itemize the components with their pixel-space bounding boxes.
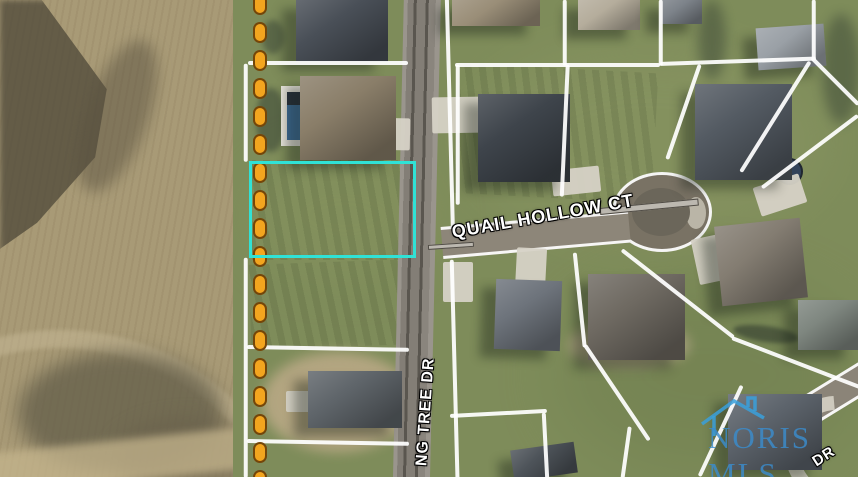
lot-boundary-dash — [253, 414, 267, 435]
driveway — [443, 262, 473, 302]
lot-boundary-dash — [253, 442, 267, 463]
tree — [698, 0, 726, 80]
lot-boundary-dash — [253, 302, 267, 323]
property-line — [456, 65, 460, 205]
lot-boundary-dash — [253, 470, 267, 477]
house-roof — [308, 371, 402, 428]
mowing-stripes — [249, 259, 412, 350]
property-line — [563, 0, 567, 66]
lot-boundary-dash — [253, 106, 267, 127]
property-line — [244, 258, 248, 477]
noris-mls-watermark: NORIS MLS — [694, 394, 858, 466]
map-canvas: QUAIL HOLLOW CT NG TREE DR DR NORIS MLS — [0, 0, 858, 477]
house-roof — [798, 300, 858, 350]
house-roof — [578, 0, 640, 30]
house-roof — [660, 0, 702, 24]
tree — [822, 14, 858, 124]
house-roof — [478, 94, 570, 182]
lot-boundary-dash — [253, 358, 267, 379]
lot-boundary-dash — [253, 330, 267, 351]
property-line — [247, 345, 409, 351]
house-roof — [300, 76, 396, 160]
lot-boundary-dash — [253, 274, 267, 295]
lot-boundary-dash — [253, 134, 267, 155]
property-line — [659, 0, 663, 66]
house-roof — [452, 0, 540, 26]
property-line — [450, 409, 547, 418]
house-roof — [494, 279, 562, 351]
lot-boundary-dash — [253, 386, 267, 407]
watermark-text: NORIS MLS — [708, 420, 858, 477]
property-line — [248, 61, 408, 65]
lot-boundary-dash — [253, 50, 267, 71]
property-line — [812, 0, 816, 60]
house-roof — [714, 218, 808, 307]
lot-boundary-dash — [253, 22, 267, 43]
subject-lot-highlight — [249, 161, 416, 258]
farm-field — [0, 0, 233, 477]
lot-boundary-dash — [253, 78, 267, 99]
property-line — [455, 63, 660, 67]
house-roof — [296, 0, 388, 62]
lot-boundary-dash — [253, 0, 267, 15]
property-line — [244, 64, 248, 162]
